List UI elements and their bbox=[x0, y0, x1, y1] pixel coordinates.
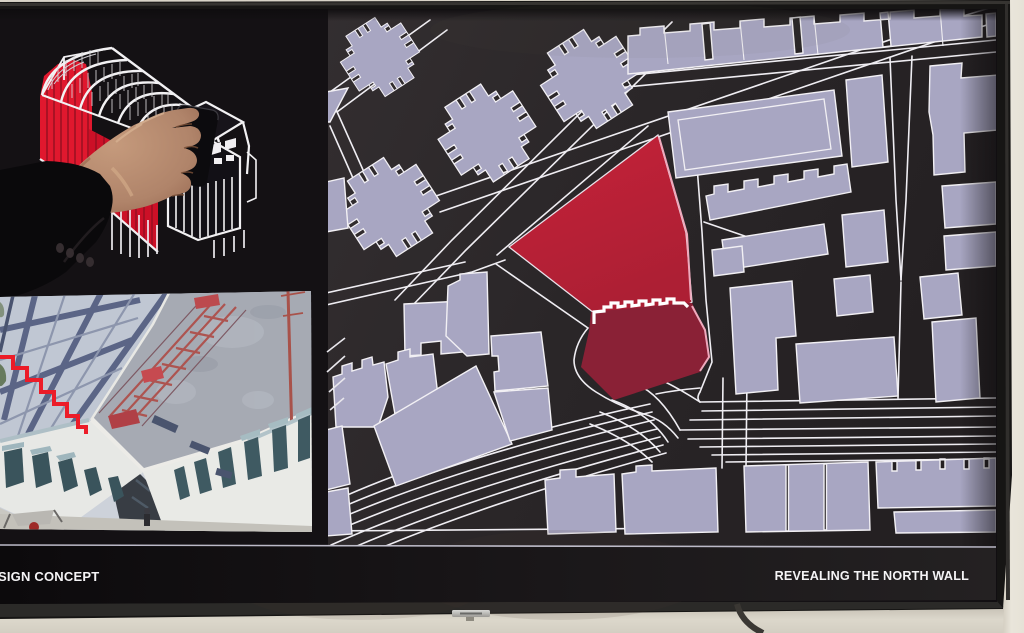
svg-text:SIGN CONCEPT: SIGN CONCEPT bbox=[0, 569, 99, 584]
svg-text:REVEALING THE NORTH WALL: REVEALING THE NORTH WALL bbox=[775, 569, 970, 583]
